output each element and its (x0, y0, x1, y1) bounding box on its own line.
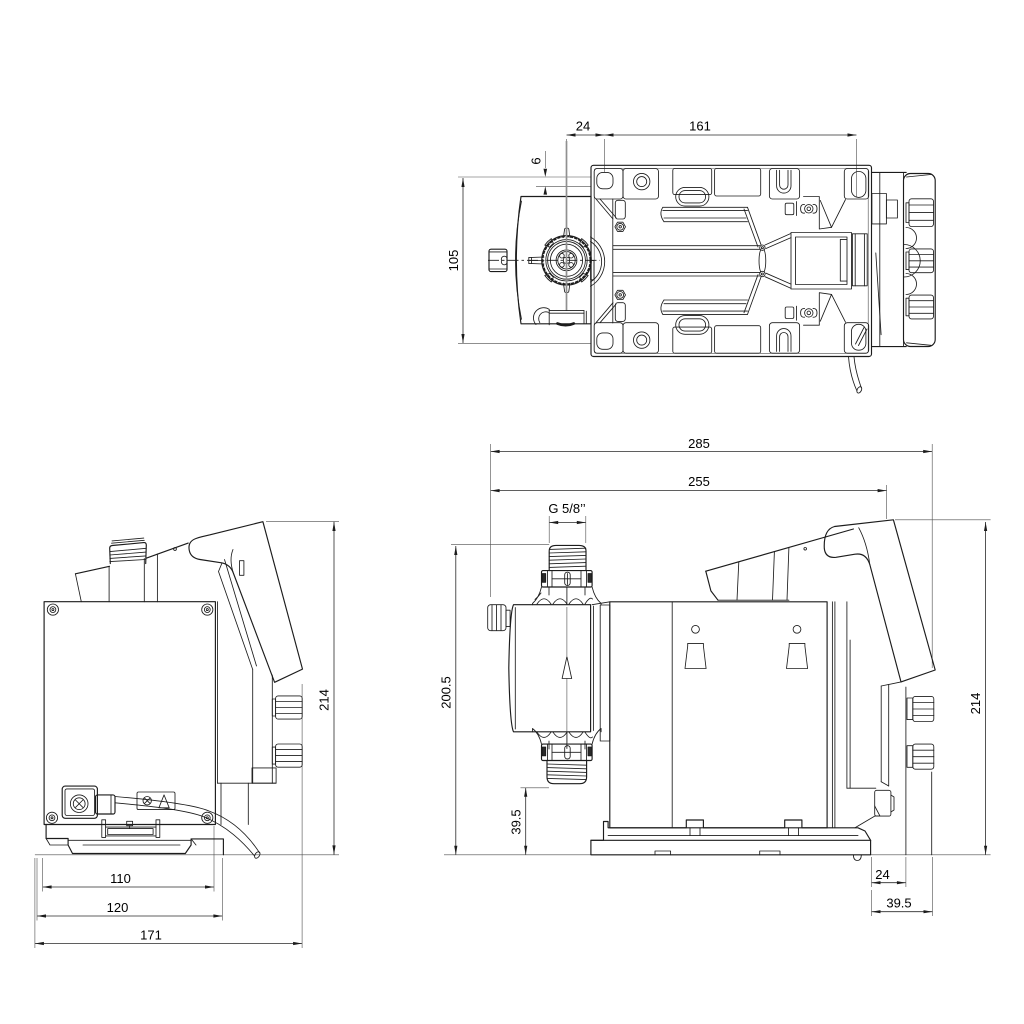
svg-text:105: 105 (446, 250, 461, 272)
svg-text:24: 24 (576, 119, 590, 134)
svg-text:110: 110 (110, 871, 131, 886)
svg-text:255: 255 (688, 474, 710, 489)
svg-text:G 5/8’’: G 5/8’’ (548, 501, 585, 516)
svg-text:214: 214 (317, 689, 332, 711)
svg-text:214: 214 (968, 693, 983, 715)
svg-text:200.5: 200.5 (439, 676, 454, 709)
svg-text:171: 171 (140, 928, 162, 943)
svg-text:39.5: 39.5 (886, 896, 911, 911)
svg-text:39.5: 39.5 (509, 809, 524, 834)
svg-text:285: 285 (688, 436, 710, 451)
svg-text:24: 24 (875, 867, 889, 882)
svg-text:120: 120 (107, 900, 129, 915)
svg-text:161: 161 (689, 119, 711, 134)
svg-text:6: 6 (529, 157, 544, 164)
